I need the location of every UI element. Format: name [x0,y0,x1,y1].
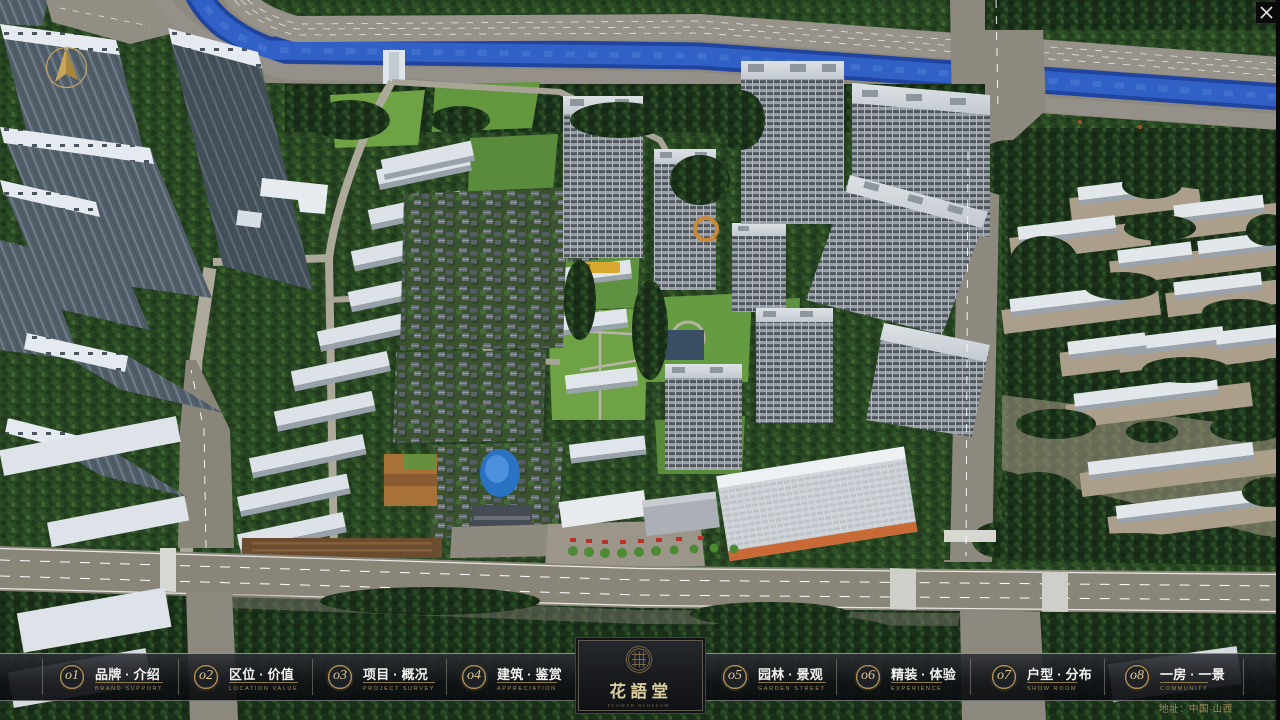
svg-text:FLOWER BLOSSOM: FLOWER BLOSSOM [608,703,670,708]
svg-text:花語堂: 花語堂 [610,681,673,701]
svg-text:N: N [64,46,68,52]
